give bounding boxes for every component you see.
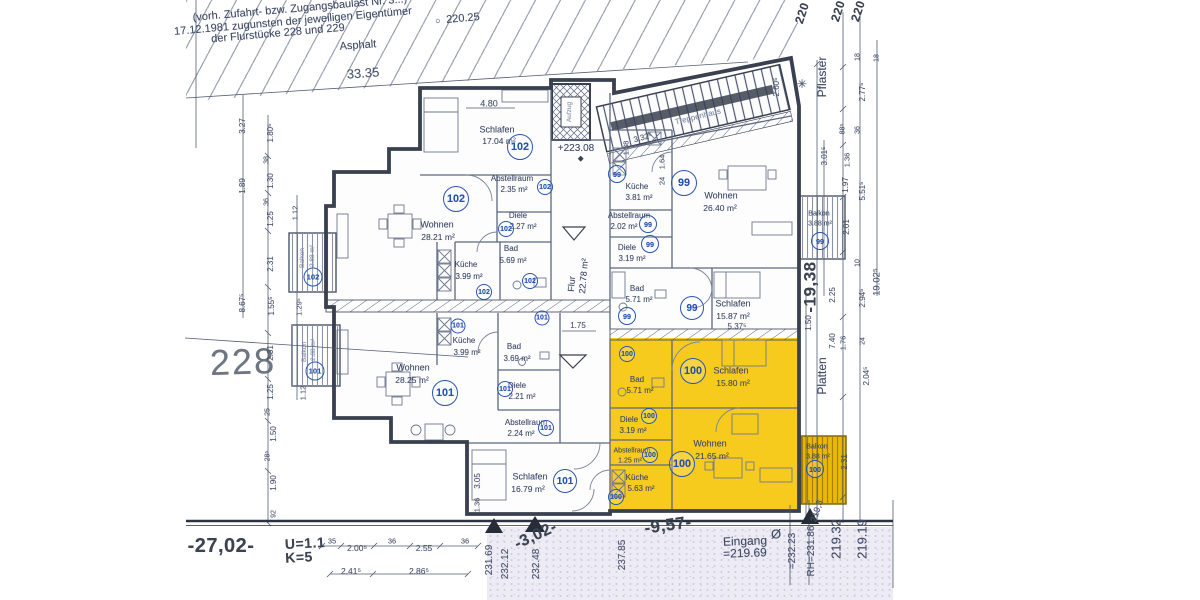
- badge-99-wohnen: 99: [671, 170, 697, 196]
- badge-101-kueche: 101: [451, 319, 466, 334]
- badge-101-diele: 101: [497, 381, 513, 397]
- badge-99-diele: 99: [641, 235, 659, 253]
- badge-100-wohnen: 100: [669, 451, 695, 477]
- floor-plan-scan: (vorh. Zufahrt- bzw. Zugangsbaulast Nr. …: [0, 0, 1200, 600]
- badge-102-abstellraum: 102: [537, 179, 553, 195]
- badge-99-kueche: 99: [608, 165, 626, 183]
- badge-99-balkon: 99: [811, 232, 829, 250]
- badge-101-bad: 101: [535, 311, 550, 326]
- badge-102-balkon: 102: [304, 268, 323, 287]
- badge-99-bad: 99: [618, 307, 636, 325]
- badge-100-abstellraum: 100: [642, 447, 658, 463]
- badge-102-schlafen: 102: [507, 134, 533, 160]
- badge-99-abstellraum: 99: [639, 215, 657, 233]
- badge-101-abstellraum: 101: [538, 420, 554, 436]
- badge-99-schlafen: 99: [680, 296, 704, 320]
- badge-102-diele: 102: [498, 221, 514, 237]
- badge-100-kueche: 100: [608, 489, 624, 505]
- badge-102-bad: 102: [522, 273, 538, 289]
- badge-101-wohnen: 101: [432, 380, 458, 406]
- unit-badge-layer: 1021021021021021021029999999999999910110…: [0, 0, 1200, 600]
- badge-102-kueche: 102: [476, 284, 492, 300]
- badge-101-schlafen: 101: [553, 469, 577, 493]
- badge-101-balkon: 101: [306, 362, 325, 381]
- badge-100-bad: 100: [619, 346, 635, 362]
- badge-100-balkon: 100: [806, 460, 824, 478]
- badge-100-diele: 100: [641, 408, 657, 424]
- badge-100-schlafen: 100: [680, 358, 706, 384]
- badge-102-wohnen: 102: [443, 186, 469, 212]
